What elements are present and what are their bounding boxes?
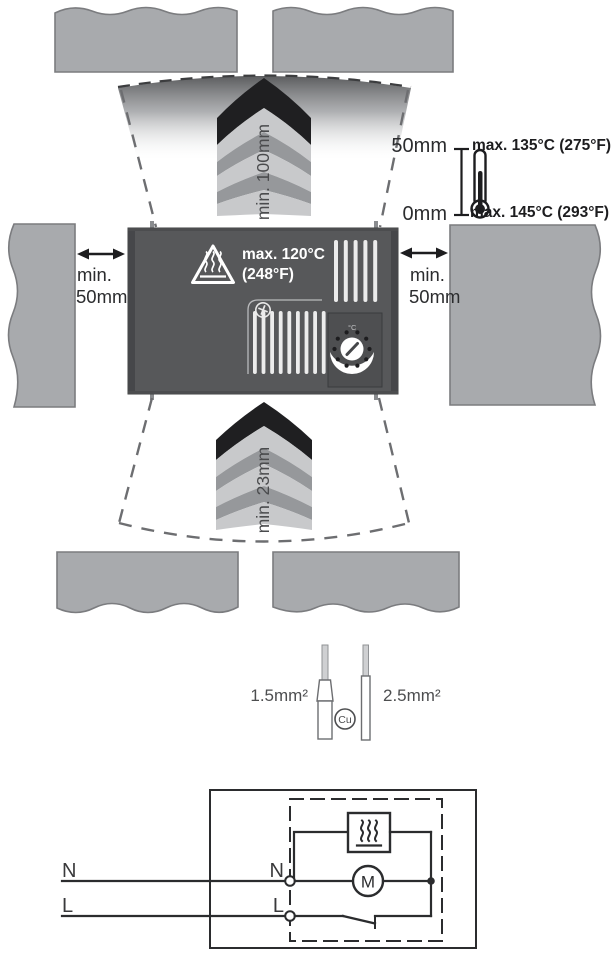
cu-label: Cu	[338, 714, 352, 726]
schematic-enclosure	[210, 790, 476, 948]
right-clearance-label-50mm: 50mm	[409, 286, 460, 307]
temp-at-50mm-label: max. 135°C (275°F)	[472, 137, 611, 154]
junction-dot	[427, 877, 435, 885]
device-left-edge	[128, 228, 135, 394]
plain-wire	[362, 645, 371, 740]
right-clearance-label-min: min.	[410, 264, 445, 285]
terminal-l	[285, 911, 295, 921]
lower-shelves	[57, 552, 459, 613]
bottom-clearance-arrow: min. 23mm	[216, 402, 312, 533]
scale-50mm-label: 50mm	[391, 135, 447, 157]
neutral-terminal-label: N	[270, 860, 284, 882]
temp-at-0mm-label: max. 145°C (293°F)	[470, 204, 609, 221]
bottom-clearance-label: min. 23mm	[253, 447, 273, 534]
motor-icon: M	[353, 866, 383, 896]
motor-label: M	[361, 873, 375, 892]
left-clearance-label-min: min.	[77, 264, 112, 285]
scale-0mm-label: 0mm	[403, 203, 447, 225]
installation-diagram-page: min. 100mm 50mm 0mm max. 135°C (275°F) m…	[0, 0, 614, 959]
device-temp-label-line1: max. 120°C	[242, 246, 325, 263]
shelf-top-right	[273, 8, 453, 73]
left-clearance-label-50mm: 50mm	[76, 286, 127, 307]
installation-diagram: min. 100mm 50mm 0mm max. 135°C (275°F) m…	[0, 0, 614, 959]
device-temp-label-line2: (248°F)	[242, 266, 294, 283]
left-clearance: min. 50mm	[76, 249, 127, 308]
wall-left	[9, 224, 76, 407]
shelf-bottom-left	[57, 552, 238, 613]
wiring-schematic: N L N L M	[62, 790, 476, 948]
line-external-label: L	[62, 895, 73, 917]
thermostat-scale-label: °C	[348, 323, 357, 332]
upper-shelves	[55, 8, 453, 73]
heater-device: max. 120°C (248°F)	[128, 221, 398, 400]
shelf-top-left	[55, 8, 237, 73]
shelf-bottom-right	[273, 552, 459, 612]
ferrule-wire	[317, 645, 333, 739]
height-scale: 50mm 0mm	[391, 135, 469, 225]
neutral-external-label: N	[62, 860, 76, 882]
arrow-head-right	[113, 249, 125, 260]
arrow-head-left	[77, 249, 89, 260]
cable-right-label: 2.5mm²	[383, 686, 441, 705]
top-clearance-label: min. 100mm	[253, 124, 273, 220]
thermostat-panel: °C	[328, 313, 382, 387]
heater-element-icon	[348, 813, 390, 852]
arrow-head-right	[436, 248, 448, 259]
arrow-head-left	[400, 248, 412, 259]
cable-spec: 1.5mm² Cu 2.5mm²	[250, 645, 441, 740]
cable-left-label: 1.5mm²	[250, 686, 308, 705]
vent-grille-lower	[253, 311, 326, 374]
wall-right	[450, 225, 601, 405]
line-terminal-label: L	[273, 895, 284, 917]
device-right-edge	[391, 228, 398, 394]
cu-badge: Cu	[335, 709, 355, 729]
